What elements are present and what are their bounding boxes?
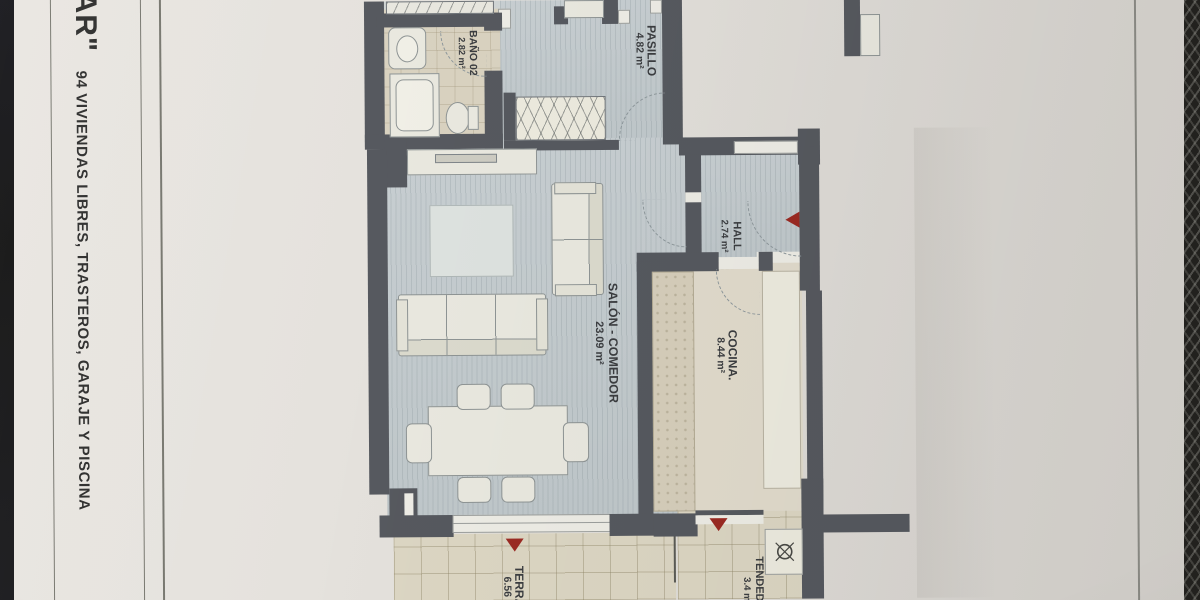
wall-segment <box>379 515 453 538</box>
sheet-frame-line <box>50 0 55 600</box>
wardrobe-bedroom <box>386 1 494 15</box>
wall-segment <box>799 146 820 290</box>
room-name: TENDEDERO <box>752 556 765 600</box>
sofa-arm <box>554 182 596 194</box>
dining-chair <box>457 477 491 503</box>
dining-chair <box>501 383 535 409</box>
room-name: SALÓN - COMEDOR <box>605 283 621 403</box>
dining-table <box>428 405 568 476</box>
room-area: 8.44 m² <box>713 330 726 381</box>
wall-segment <box>484 13 502 31</box>
entrance-arrow-hall <box>785 212 799 228</box>
kitchen-counter-left <box>652 271 696 511</box>
sofa-arm <box>536 298 548 350</box>
wall-segment <box>801 478 824 598</box>
toilet-tank <box>468 106 479 130</box>
sliding-door-drying <box>696 515 764 524</box>
room-label-terrace: TERRAZA 6.56 m² <box>500 566 527 600</box>
room-name: COCINA. <box>725 330 740 381</box>
sink <box>388 27 426 69</box>
entrance-arrow-drying <box>710 518 728 531</box>
dining-chair <box>563 422 589 462</box>
room-name: PASILLO <box>644 25 659 76</box>
wall-segment <box>609 514 659 536</box>
room-area: 23.09 m² <box>592 283 606 403</box>
title-block: AR" 94 VIVIENDAS LIBRES, TRASTEROS, GARA… <box>68 0 106 600</box>
rug <box>429 205 514 278</box>
sheet-frame-line <box>140 0 145 600</box>
room-area: 6.56 m² <box>500 566 513 600</box>
sheet-frame-line <box>1134 0 1140 600</box>
wall-segment <box>844 0 860 56</box>
room-name: HALL <box>730 220 743 253</box>
room-label-hall: HALL 2.74 m² <box>718 220 742 253</box>
room-area: 3.4 m² <box>741 556 753 600</box>
sheet-frame-line <box>159 0 165 600</box>
bathtub-inner <box>395 79 433 131</box>
wall-segment <box>685 154 702 266</box>
wardrobe-hallway <box>516 96 606 141</box>
room-area: 2.74 m² <box>718 220 730 253</box>
toilet <box>446 102 470 134</box>
floor-terrace <box>394 532 676 600</box>
wall-segment <box>822 514 910 533</box>
door-jamb <box>618 10 630 24</box>
wall-segment <box>653 513 697 536</box>
plan-sheet: AR" 94 VIVIENDAS LIBRES, TRASTEROS, GARA… <box>0 0 1200 600</box>
sink-basin <box>396 35 418 62</box>
project-title-fragment: AR" <box>69 0 102 52</box>
entry-door <box>734 141 798 154</box>
dining-chair <box>457 384 491 410</box>
room-label-bathroom: BAÑO 02 2.82 m² <box>456 30 479 76</box>
room-name: TERRAZA <box>512 566 527 600</box>
room-label-kitchen: COCINA. 8.44 m² <box>713 330 740 381</box>
sofa-arm <box>396 299 408 351</box>
drain-box <box>765 529 803 575</box>
kitchen-counter-right <box>762 271 802 489</box>
photo-right-dark-edge <box>1184 0 1200 600</box>
room-label-drying: TENDEDERO 3.4 m² <box>741 556 766 600</box>
drain-symbol-icon <box>772 539 798 565</box>
entrance-arrow-terrace <box>506 539 524 552</box>
room-label-hallway: PASILLO 4.82 m² <box>632 25 659 76</box>
wall-segment <box>602 0 618 24</box>
furniture-partial <box>860 14 880 56</box>
sofa-two-seat <box>551 183 604 295</box>
room-area: 2.82 m² <box>456 30 467 76</box>
wall-segment <box>367 149 389 494</box>
room-label-living: SALÓN - COMEDOR 23.09 m² <box>592 283 620 403</box>
project-subtitle: 94 VIVIENDAS LIBRES, TRASTEROS, GARAJE Y… <box>72 71 92 511</box>
terrace-boundary-line <box>674 536 676 582</box>
dining-chair <box>406 423 432 463</box>
sofa-arm <box>555 284 597 296</box>
paper-shadow-band <box>914 127 997 598</box>
door-jamb <box>650 0 662 14</box>
bathtub <box>389 73 439 137</box>
wall-segment <box>637 262 654 518</box>
floorplan-photo: AR" 94 VIVIENDAS LIBRES, TRASTEROS, GARA… <box>0 0 1200 600</box>
wall-segment <box>504 93 516 141</box>
wall-segment <box>759 252 773 271</box>
sofa-three-seat <box>398 293 546 356</box>
tv <box>435 154 497 163</box>
dining-chair <box>501 476 535 502</box>
wall-segment <box>385 139 407 187</box>
room-area: 4.82 m² <box>632 25 645 76</box>
door-threshold <box>719 257 759 269</box>
wall-segment <box>662 0 683 145</box>
door-jamb <box>685 192 701 202</box>
room-name: BAÑO 02 <box>466 30 479 76</box>
bed-partial <box>564 0 604 18</box>
